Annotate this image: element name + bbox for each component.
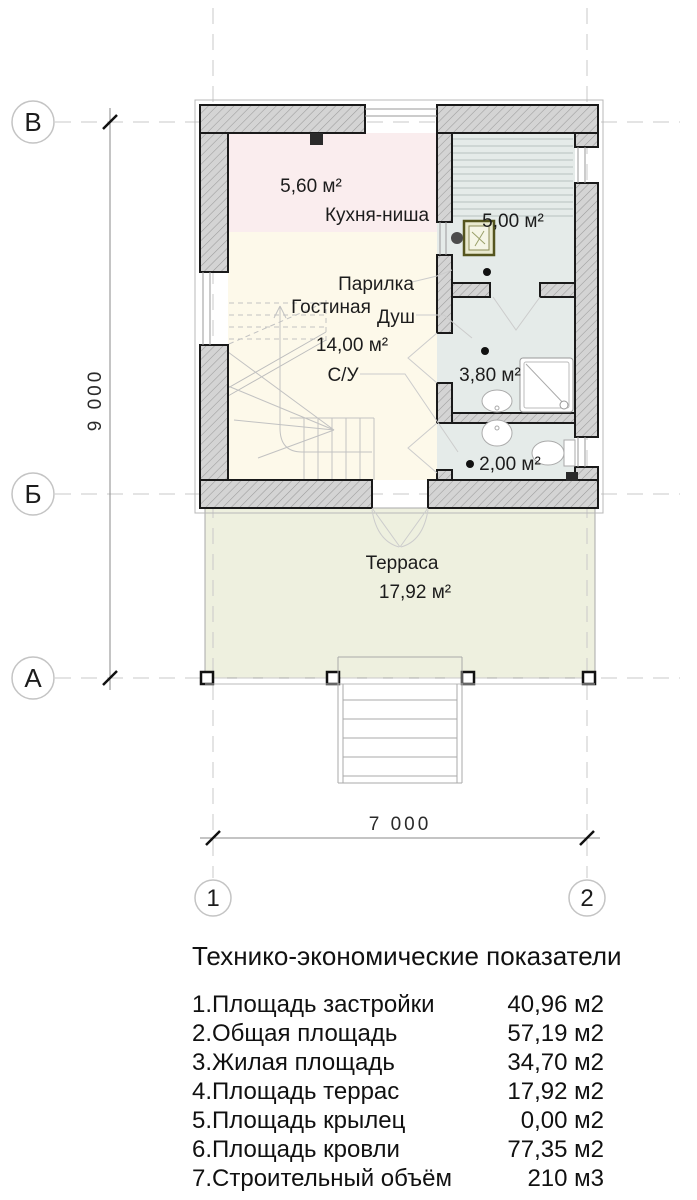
teo-row-label: 2.Общая площадь: [192, 1019, 397, 1048]
teo-row-label: 5.Площадь крылец: [192, 1106, 405, 1135]
shower-name: Душ: [377, 307, 415, 328]
axis-number-2: 2: [580, 885, 593, 912]
wall-vent-block: [310, 133, 323, 145]
living-area: 14,00 м²: [316, 335, 388, 356]
dim-width-label: 7 000: [369, 814, 432, 835]
teo-row-value: 40,96 м2: [507, 990, 604, 1019]
axis-letter-a: А: [24, 663, 42, 693]
teo-row: 4.Площадь террас 17,92 м2: [192, 1077, 604, 1106]
sauna-area: 5,00 м²: [482, 211, 544, 232]
teo-row-label: 7.Строительный объём: [192, 1164, 452, 1193]
teo-row: 1.Площадь застройки 40,96 м2: [192, 990, 604, 1019]
teo-row-label: 1.Площадь застройки: [192, 990, 435, 1019]
ceiling-point-sauna: [483, 268, 491, 276]
wall-corner-block: [566, 472, 578, 481]
teo-row-label: 3.Жилая площадь: [192, 1048, 395, 1077]
floor-plan-drawing: 9 000 7 000 В Б А 1 2 5,60 м² Кухня-ниша…: [0, 0, 697, 930]
teo-row-value: 34,70 м2: [507, 1048, 604, 1077]
shower-area: 3,80 м²: [459, 365, 521, 386]
axis-number-1: 1: [206, 885, 219, 912]
teo-row-value: 0,00 м2: [521, 1106, 604, 1135]
living-name: Гостиная: [291, 297, 371, 318]
toilet-tank: [564, 440, 575, 466]
teo-row: 2.Общая площадь 57,19 м2: [192, 1019, 604, 1048]
sauna-name: Парилка: [338, 274, 414, 295]
sink-shower: [482, 390, 512, 412]
teo-row-value: 17,92 м2: [507, 1077, 604, 1106]
teo-row-value: 57,19 м2: [507, 1019, 604, 1048]
dim-height-label: 9 000: [85, 369, 106, 432]
teo-table: Технико-экономические показатели 1.Площа…: [192, 941, 604, 1193]
teo-row: 5.Площадь крылец 0,00 м2: [192, 1106, 604, 1135]
teo-row-label: 4.Площадь террас: [192, 1077, 399, 1106]
terrace-name: Терраса: [366, 553, 439, 574]
axis-letter-b: Б: [24, 479, 41, 509]
teo-title: Технико-экономические показатели: [192, 941, 604, 971]
teo-row: 6.Площадь кровли 77,35 м2: [192, 1135, 604, 1164]
kitchen-name: Кухня-ниша: [325, 205, 430, 226]
teo-row-value: 77,35 м2: [507, 1135, 604, 1164]
sink-wc: [482, 420, 512, 446]
wc-area: 2,00 м²: [479, 454, 541, 475]
ceiling-point-shower: [481, 347, 489, 355]
axis-letter-v: В: [24, 107, 41, 137]
floor-plan-sheet: 9 000 7 000 В Б А 1 2 5,60 м² Кухня-ниша…: [0, 0, 697, 1200]
teo-row-label: 6.Площадь кровли: [192, 1135, 400, 1164]
teo-row: 3.Жилая площадь 34,70 м2: [192, 1048, 604, 1077]
wc-name: С/У: [327, 365, 359, 386]
stove-chimney: [451, 232, 463, 244]
terrace-area: 17,92 м²: [379, 582, 451, 603]
teo-row-value: 210 м3: [527, 1164, 604, 1193]
kitchen-area: 5,60 м²: [280, 176, 342, 197]
ceiling-point-wc: [466, 460, 474, 468]
teo-row: 7.Строительный объём 210 м3: [192, 1164, 604, 1193]
